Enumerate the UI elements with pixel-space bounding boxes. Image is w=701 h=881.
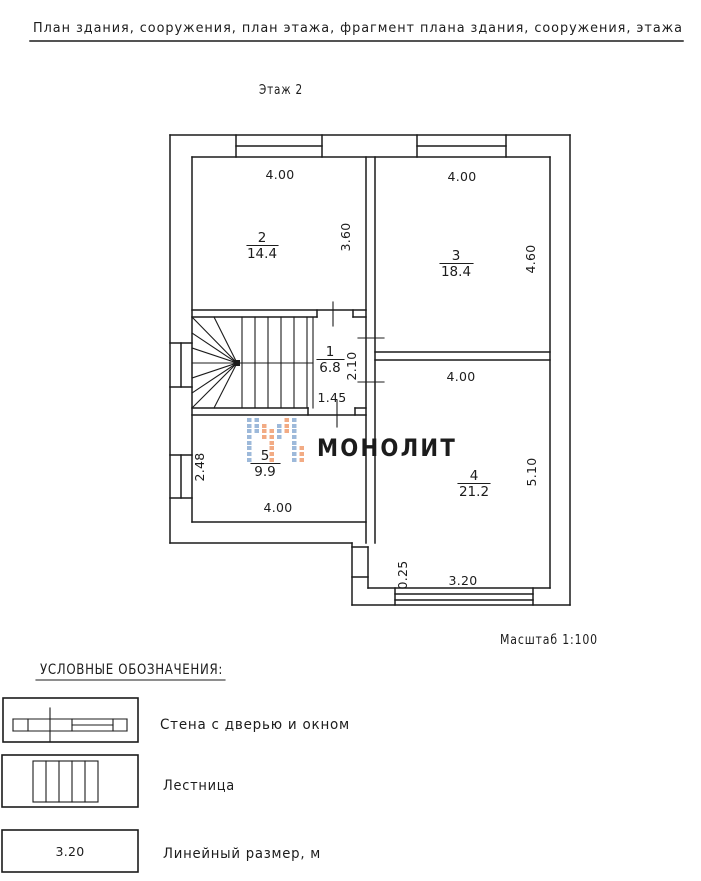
legend-heading: УСЛОВНЫЕ ОБОЗНАЧЕНИЯ: [40, 662, 223, 678]
window-bottom-room4 [395, 588, 533, 605]
room-label-2: 2 14.4 [247, 230, 278, 262]
window-left-stair [170, 343, 192, 387]
wall-door-window-symbol [13, 708, 127, 742]
dim-hall-width: 1.45 [317, 390, 346, 405]
dim-window-width: 3.20 [448, 573, 477, 588]
legend-label-dimension: Линейный размер, м [163, 846, 321, 862]
floor-title: Этаж 2 [259, 83, 303, 98]
room-number: 4 [470, 468, 479, 484]
staircase [192, 317, 313, 408]
room-number: 3 [452, 248, 461, 264]
room-area: 18.4 [441, 264, 471, 280]
watermark-text: МОНОЛИТ [317, 434, 457, 462]
dim-room4-width: 4.00 [446, 369, 475, 384]
room-area: 14.4 [247, 246, 277, 262]
dim-room2-depth: 3.60 [338, 222, 353, 251]
room-number: 2 [258, 230, 267, 246]
legend-item-dimension: 3.20 Линейный размер, м [2, 830, 321, 872]
legend-item-stairs: Лестница [2, 755, 235, 807]
stairs-symbol [33, 761, 98, 802]
room-label-4: 4 21.2 [458, 468, 490, 500]
scale-label: Масштаб 1:100 [500, 633, 598, 648]
room-number: 1 [326, 344, 335, 360]
room-label-1: 1 6.8 [317, 344, 344, 376]
legend-label-wall: Стена с дверью и окном [160, 717, 350, 733]
dim-room5-depth: 2.48 [192, 452, 207, 481]
legend-label-stairs: Лестница [163, 778, 235, 794]
legend-item-wall: Стена с дверью и окном [3, 698, 350, 742]
dim-room4-depth: 5.10 [524, 457, 539, 486]
stair-winder-center [234, 360, 240, 366]
window-top-room3 [417, 135, 506, 157]
dim-room3-depth: 4.60 [523, 244, 538, 273]
dim-ledge: 0.25 [395, 560, 410, 589]
dim-hall-depth: 2.10 [344, 351, 359, 380]
dim-room5-width: 4.00 [263, 500, 292, 515]
legend: УСЛОВНЫЕ ОБОЗНАЧЕНИЯ: Стена с дверью и о… [2, 662, 350, 872]
room-label-5: 5 9.9 [251, 448, 280, 480]
room-number: 5 [261, 448, 270, 464]
window-top-room2 [236, 135, 322, 157]
room-area: 9.9 [254, 464, 275, 480]
dim-room3-width: 4.00 [447, 169, 476, 184]
floor-plan-drawing: План здания, сооружения, план этажа, фра… [0, 0, 701, 881]
dim-room2-width: 4.00 [265, 167, 294, 182]
room-area: 6.8 [319, 360, 340, 376]
watermark: МОНОЛИТ [247, 418, 457, 462]
document-header: План здания, сооружения, план этажа, фра… [30, 20, 683, 41]
legend-dimension-sample: 3.20 [55, 844, 84, 859]
window-left-room5 [170, 455, 192, 498]
header-title: План здания, сооружения, план этажа, фра… [33, 20, 683, 36]
room-area: 21.2 [459, 484, 489, 500]
room-label-3: 3 18.4 [440, 248, 473, 280]
drawing-sheet: План здания, сооружения, план этажа, фра… [0, 0, 701, 881]
